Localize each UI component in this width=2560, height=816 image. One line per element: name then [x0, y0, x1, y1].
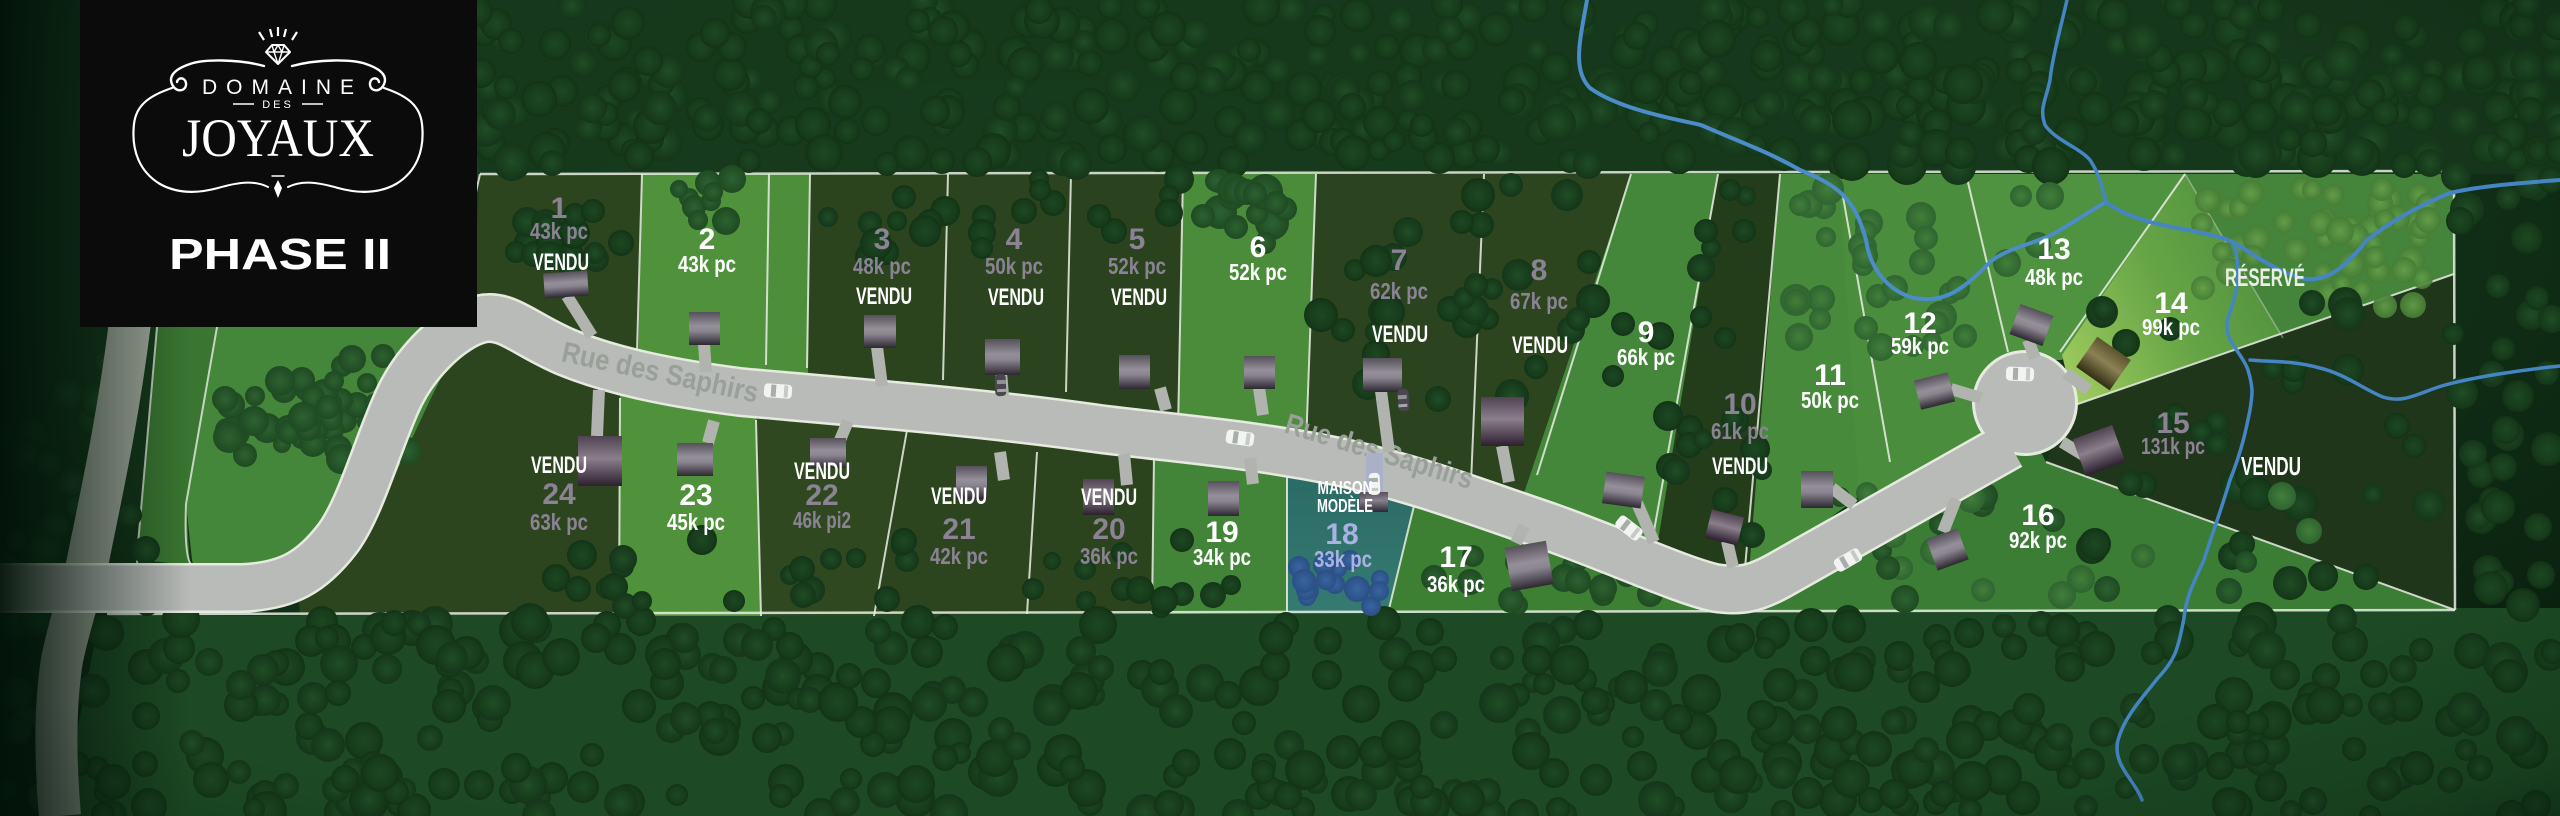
svg-text:JOYAUX: JOYAUX [182, 108, 374, 168]
svg-text:PHASE II: PHASE II [169, 230, 391, 279]
